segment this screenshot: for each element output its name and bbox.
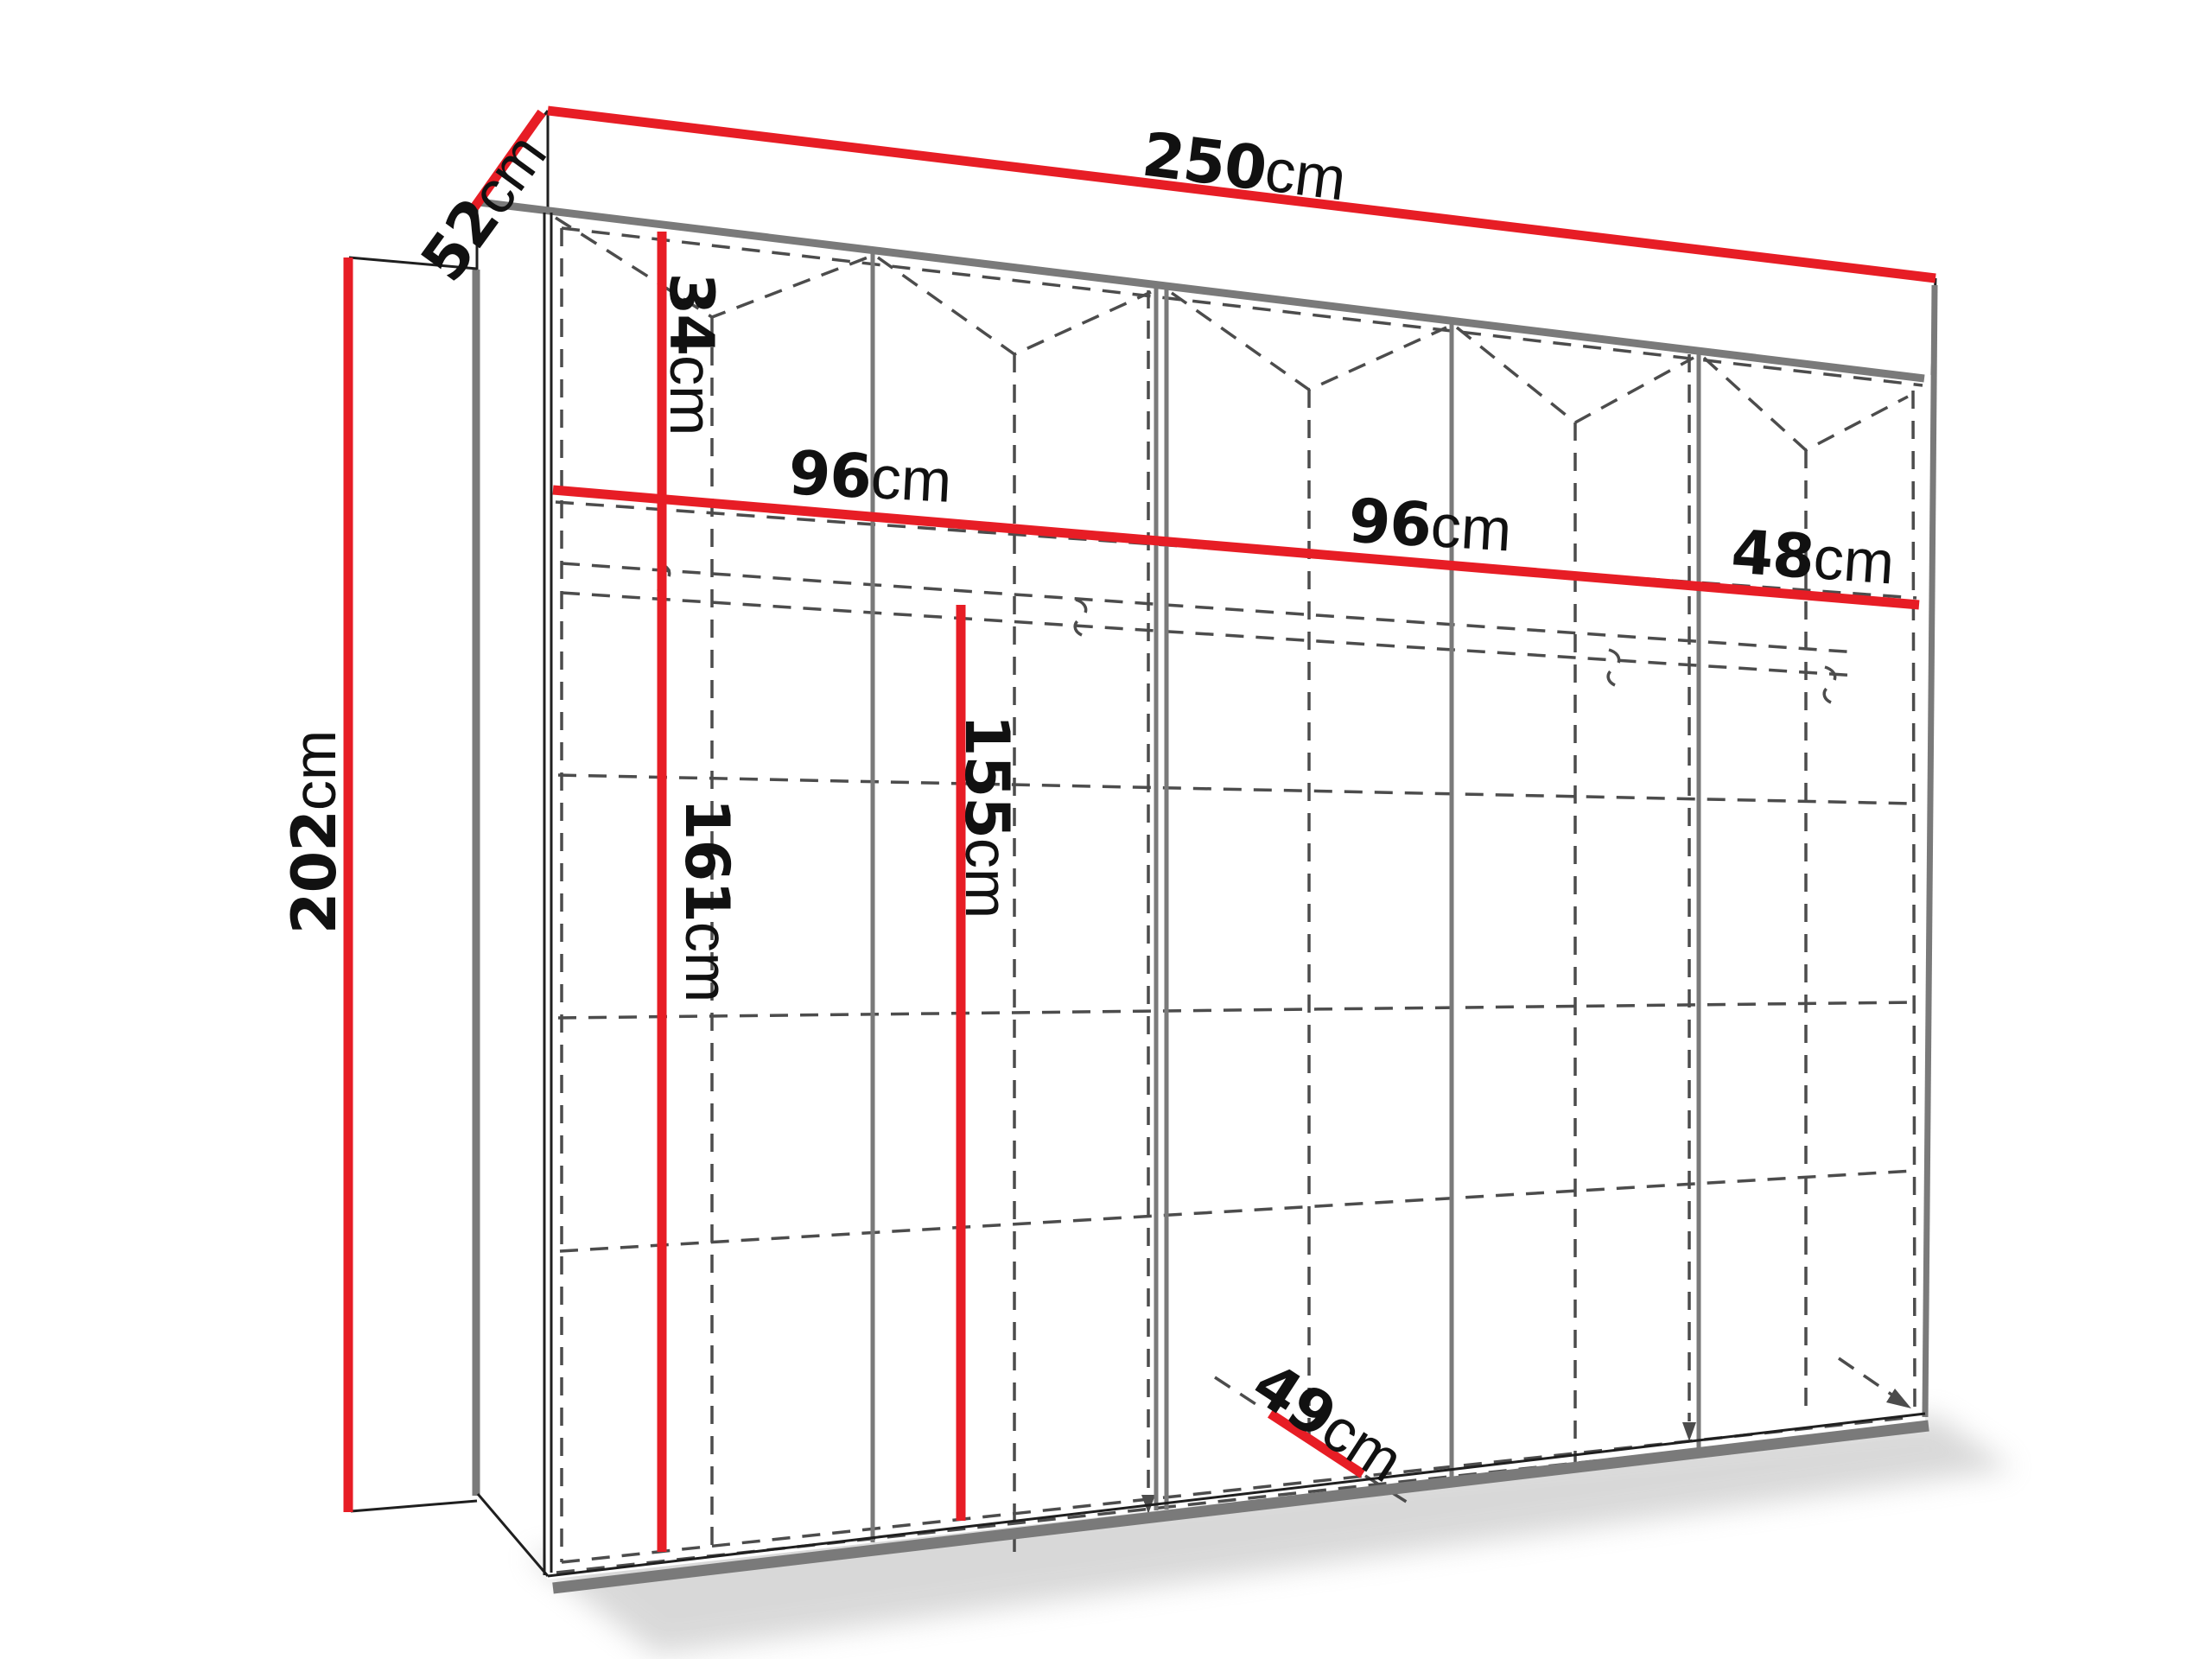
dimension-value: 155 xyxy=(951,715,1022,838)
dimension-unit: cm xyxy=(658,355,725,435)
dimension-value: 96 xyxy=(787,437,874,512)
dimension-unit: cm xyxy=(1429,492,1514,563)
dimension-label-left-inner-height: 161cm xyxy=(677,798,737,1002)
dimension-value: 202 xyxy=(279,810,350,934)
dimension-unit: cm xyxy=(281,730,348,810)
dimension-value: 48 xyxy=(1729,517,1816,593)
extension-lines xyxy=(349,257,477,1511)
dimension-value: 34 xyxy=(656,273,727,355)
dimension-label-top-section-height: 34cm xyxy=(661,273,721,436)
dimension-label-middle-inner-height: 155cm xyxy=(957,715,1017,918)
dimension-unit: cm xyxy=(1811,524,1897,596)
dimension-label-middle-section-width: 96cm xyxy=(1347,490,1514,560)
dimension-value: 161 xyxy=(671,798,742,922)
dimension-label-total-height: 202cm xyxy=(284,730,345,934)
dimension-label-left-section-width: 96cm xyxy=(787,442,953,512)
dimension-unit: cm xyxy=(869,443,953,515)
wardrobe-dimension-diagram: 250cm 52cm 202cm 34cm 96cm 96cm 48cm 161… xyxy=(0,0,2212,1659)
dimension-value: 96 xyxy=(1346,485,1433,561)
dimension-unit: cm xyxy=(673,922,741,1002)
dimension-unit: cm xyxy=(953,838,1020,918)
dimension-label-right-section-width: 48cm xyxy=(1729,522,1896,594)
dimension-unit: cm xyxy=(1262,136,1350,213)
